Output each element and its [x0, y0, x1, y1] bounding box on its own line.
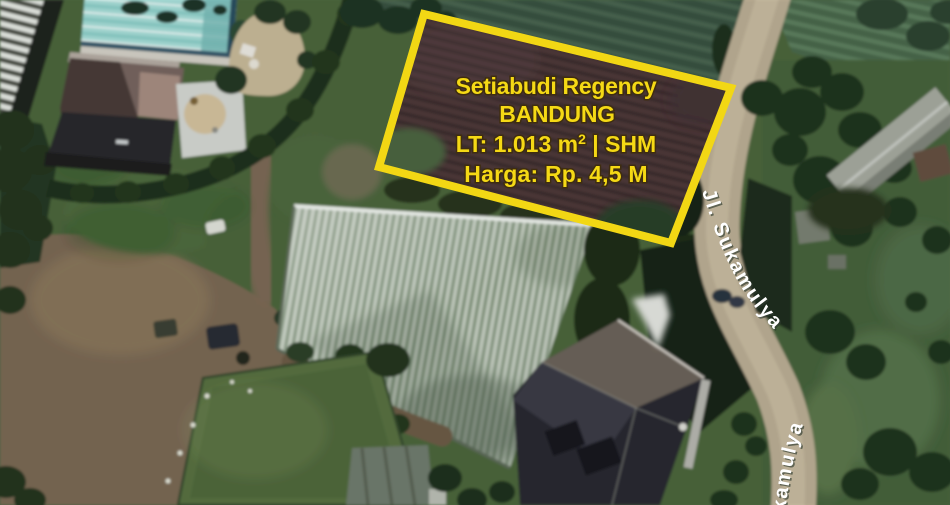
svg-text:Harga: Rp. 4,5 M: Harga: Rp. 4,5 M	[464, 161, 647, 187]
svg-text:Setiabudi Regency: Setiabudi Regency	[456, 73, 657, 99]
svg-text:BANDUNG: BANDUNG	[499, 101, 614, 127]
svg-text:LT: 1.013 m2 | SHM: LT: 1.013 m2 | SHM	[456, 131, 656, 157]
